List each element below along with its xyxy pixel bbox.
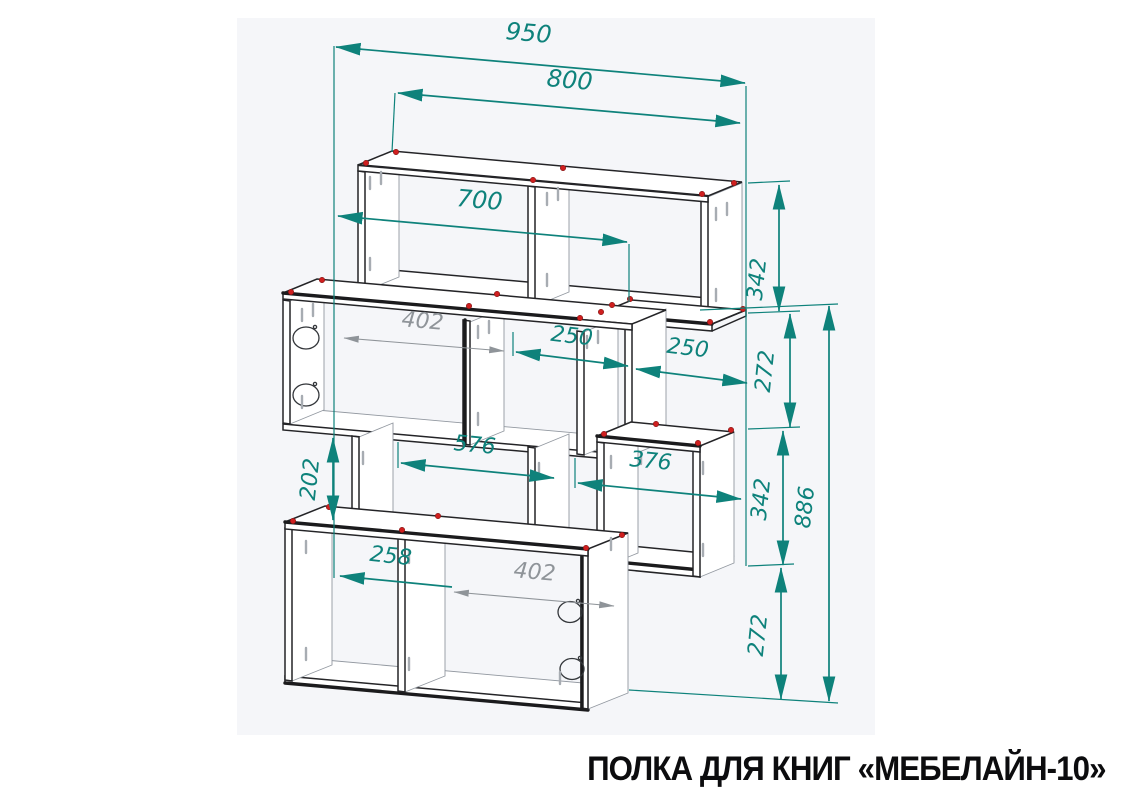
product-title: ПОЛКА ДЛЯ КНИГ «МЕБЕЛАЙН-10» — [588, 750, 1106, 789]
dim-label-376: 376 — [629, 447, 673, 476]
dim-label-250c: 250 — [549, 322, 594, 352]
dimension-labels: 950 800 700 402 250 250 576 376 258 402 … — [296, 17, 820, 657]
dim-label-402a: 402 — [401, 307, 445, 336]
dim-label-700: 700 — [456, 184, 504, 216]
dim-label-342b: 342 — [747, 477, 776, 521]
dim-label-950: 950 — [505, 17, 553, 49]
dim-label-402b: 402 — [513, 558, 557, 587]
dim-line-950 — [336, 47, 745, 83]
dim-label-576: 576 — [453, 431, 497, 460]
dim-label-258: 258 — [368, 542, 412, 571]
dim-label-250r: 250 — [665, 334, 710, 364]
bottom-cabinet — [285, 506, 628, 710]
dim-label-272b: 272 — [744, 613, 773, 657]
dim-label-272a: 272 — [751, 349, 780, 393]
dim-label-202: 202 — [296, 457, 325, 501]
dim-label-800: 800 — [546, 64, 594, 96]
assembly-diagram: 950 800 700 402 250 250 576 376 258 402 … — [0, 0, 1140, 806]
dim-label-342a: 342 — [743, 257, 772, 301]
dim-line-800 — [398, 93, 740, 123]
dim-label-886: 886 — [791, 485, 820, 529]
